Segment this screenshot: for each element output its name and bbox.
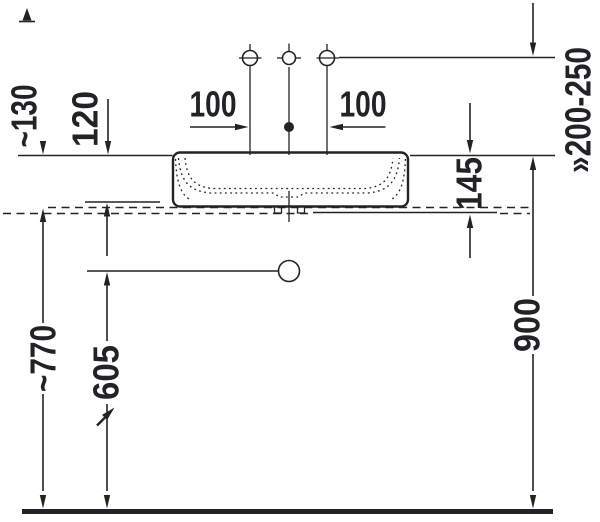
tap-hole-group xyxy=(239,44,555,156)
dim-label-wall-distance: ~130 xyxy=(4,85,45,148)
dim-wall-distance: ~130 xyxy=(4,8,47,155)
technical-drawing-page: 100 100 ~130 120 145 »200-250 900 xyxy=(0,0,600,517)
dim-basin-rim-to-counter: 145 xyxy=(449,103,490,258)
washbasin-cross-section xyxy=(173,153,408,223)
dim-label-outlet-height: 605 xyxy=(86,345,127,400)
dim-label-rim-height: 900 xyxy=(507,298,548,352)
dim-label-tap-above-rim-range: »200-250 xyxy=(558,47,599,173)
dim-outlet-height: 605 xyxy=(86,203,127,509)
dim-tap-range-and-rim-height: »200-250 900 xyxy=(507,3,599,509)
dim-label-counter-height: ~770 xyxy=(23,325,64,392)
dim-counter-height: ~770 xyxy=(23,209,64,509)
centerline-reference-dot xyxy=(284,122,294,132)
washbasin-technical-drawing: 100 100 ~130 120 145 »200-250 900 xyxy=(0,0,600,517)
floor-line xyxy=(22,509,553,514)
tap-hole-circle-center xyxy=(283,52,296,65)
drain-outlet xyxy=(87,261,300,282)
basin-outline xyxy=(173,153,408,207)
dim-label-basin-rim-to-counter: 145 xyxy=(449,157,490,210)
dim-label-tap-hole-left: 100 xyxy=(190,84,237,125)
dim-label-tap-offset: 120 xyxy=(65,91,106,147)
dim-label-tap-hole-right: 100 xyxy=(340,84,387,125)
drain-outlet-circle xyxy=(279,261,300,282)
dim-tap-offset: 120 xyxy=(65,91,112,155)
